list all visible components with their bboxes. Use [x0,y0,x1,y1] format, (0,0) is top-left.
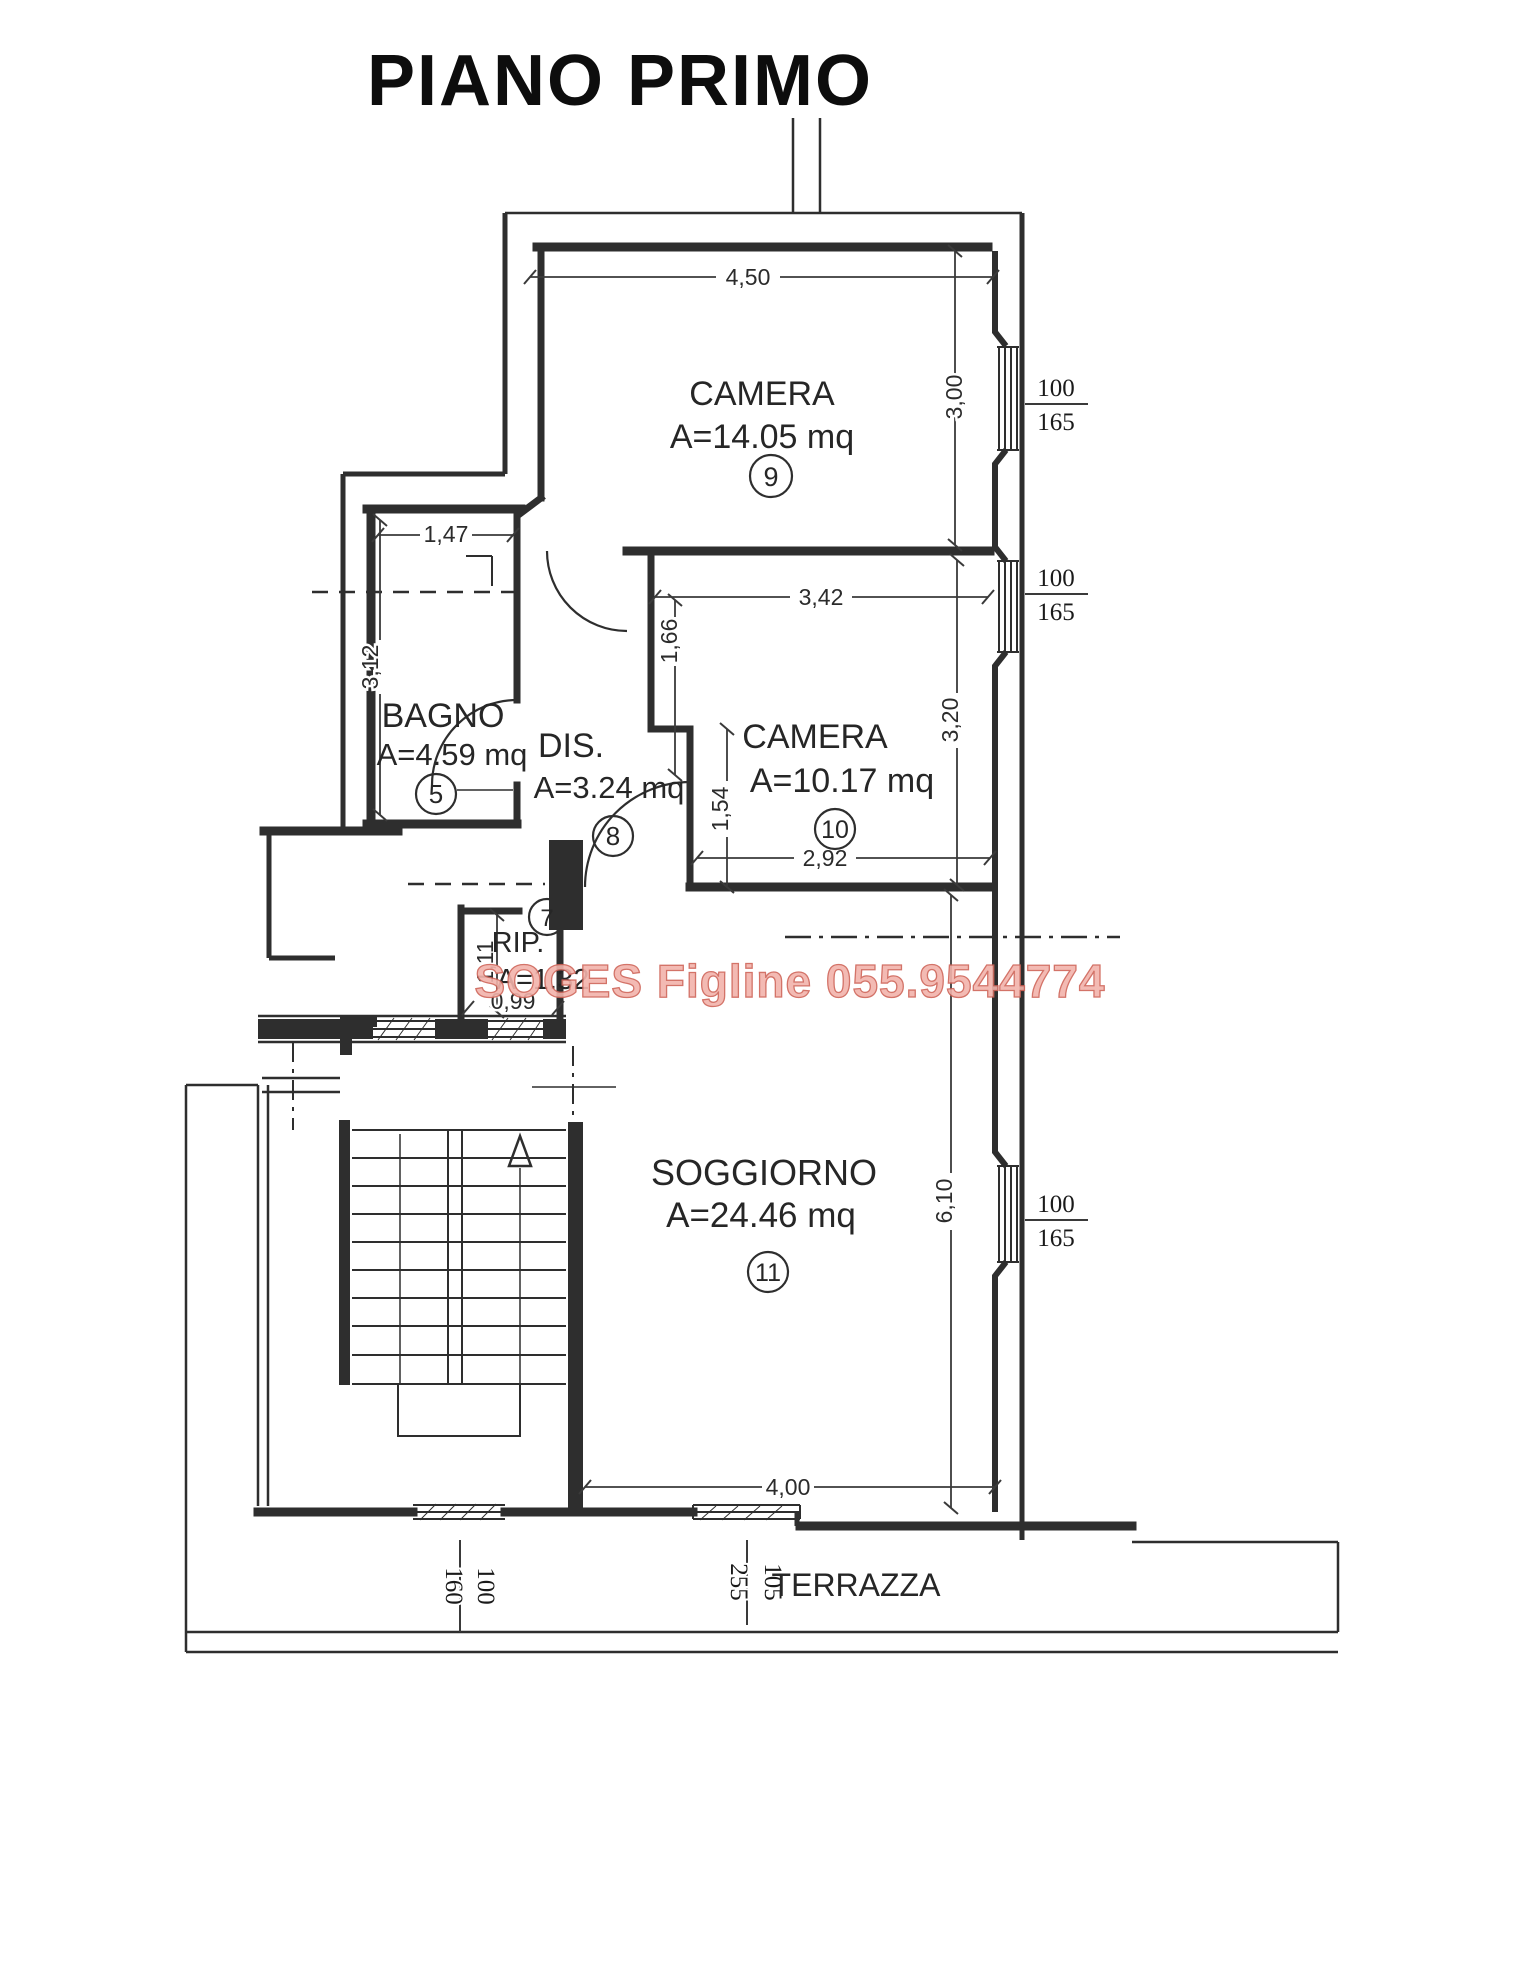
room-label-bagno: BAGNO A=4.59 mq 5 [377,697,528,814]
stairs [352,1130,566,1384]
soggiorno-area: A=24.46 mq [666,1196,856,1235]
bagno-name: BAGNO [382,697,505,735]
window-camera10 [997,561,1019,652]
stair-up-arrow [509,1136,531,1166]
stair-walk-lines [400,1134,520,1384]
window-soggiorno [997,1166,1019,1262]
floor-plan-page: 4,50 3,00 1,47 3,12 3,42 1,66 1,54 2,92 … [0,0,1515,1963]
bagno-fixture [466,556,492,586]
dim-bagno-height: 3,12 [357,645,383,690]
dis-name: DIS. [538,727,604,765]
window-tag-stairwell: 100 160 [440,1567,499,1605]
page-title: PIANO PRIMO [367,41,873,121]
window-terrace-height: 255 [725,1563,752,1601]
west-boundary [186,1085,258,1652]
camera10-area: A=10.17 mq [750,762,934,800]
terrazza-name: TERRAZZA [772,1567,942,1603]
dis-number: 8 [606,821,620,851]
stair-stringer [448,1130,462,1384]
window-tag-camera9: 100 165 [1037,375,1075,436]
dim-camera10-lower: 1,54 [707,786,733,831]
dim-soggiorno-height: 6,10 [931,1179,957,1224]
dim-soggiorno-width: 4,00 [766,1474,811,1500]
camera9-number: 9 [763,462,778,492]
window-camera10-width: 100 [1037,565,1075,592]
room-label-dis: DIS. A=3.24 mq 8 [534,727,685,856]
camera9-name: CAMERA [689,375,835,413]
room-label-soggiorno: SOGGIORNO A=24.46 mq 11 [651,1152,877,1292]
soggiorno-name: SOGGIORNO [651,1152,877,1193]
camera9-area: A=14.05 mq [670,418,854,456]
window-stairwell-width: 100 [472,1567,499,1605]
window-camera9-width: 100 [1037,375,1075,402]
window-stairwell-height: 160 [440,1567,467,1605]
window-camera9-height: 165 [1037,409,1075,436]
stairwell-west-double-wall [258,1085,268,1506]
stairs-landing-box [398,1384,520,1436]
dim-camera10-width: 3,42 [799,584,844,610]
watermark: SOGES Figline 055.9544774 [475,955,1106,1007]
window-soggiorno-width: 100 [1037,1191,1075,1218]
door-camera9 [547,551,627,631]
camera9-west-wall [521,247,541,513]
room-label-camera9: CAMERA A=14.05 mq 9 [670,375,854,497]
camera10-number: 10 [821,816,849,844]
dim-camera9-height: 3,00 [941,375,967,420]
camera10-west-wall [651,556,690,887]
dim-bagno-width: 1,47 [424,521,469,547]
bagno-number: 5 [429,779,443,809]
floor-plan-drawing: 4,50 3,00 1,47 3,12 3,42 1,66 1,54 2,92 … [0,0,1515,1963]
dis-area: A=3.24 mq [534,770,685,805]
soggiorno-west-wall [568,1122,583,1512]
window-tag-camera10: 100 165 [1037,565,1075,626]
window-camera10-height: 165 [1037,599,1075,626]
window-camera9 [997,347,1019,450]
dim-top-width: 4,50 [726,264,771,290]
window-glyphs [373,347,1019,1520]
bagno-area: A=4.59 mq [377,737,528,772]
window-tag-soggiorno: 100 165 [1037,1191,1075,1252]
dim-camera10-height: 3,20 [937,698,963,743]
stairwell-top-double-wall [262,1078,340,1092]
exterior-medium-walls [269,213,1022,1540]
window-stairwell [413,1505,505,1519]
room-label-camera10: CAMERA A=10.17 mq 10 [742,718,934,849]
building-stub-top-right [793,118,820,213]
soggiorno-number: 11 [755,1259,781,1287]
camera10-name: CAMERA [742,718,888,756]
stair-treads [352,1130,566,1384]
dim-camera10-upper: 1,66 [656,619,682,664]
rip-number: 7 [540,905,553,932]
entry-niche-walls [269,831,335,958]
window-soggiorno-height: 165 [1037,1225,1075,1252]
stairs-west-wall [339,1120,350,1385]
